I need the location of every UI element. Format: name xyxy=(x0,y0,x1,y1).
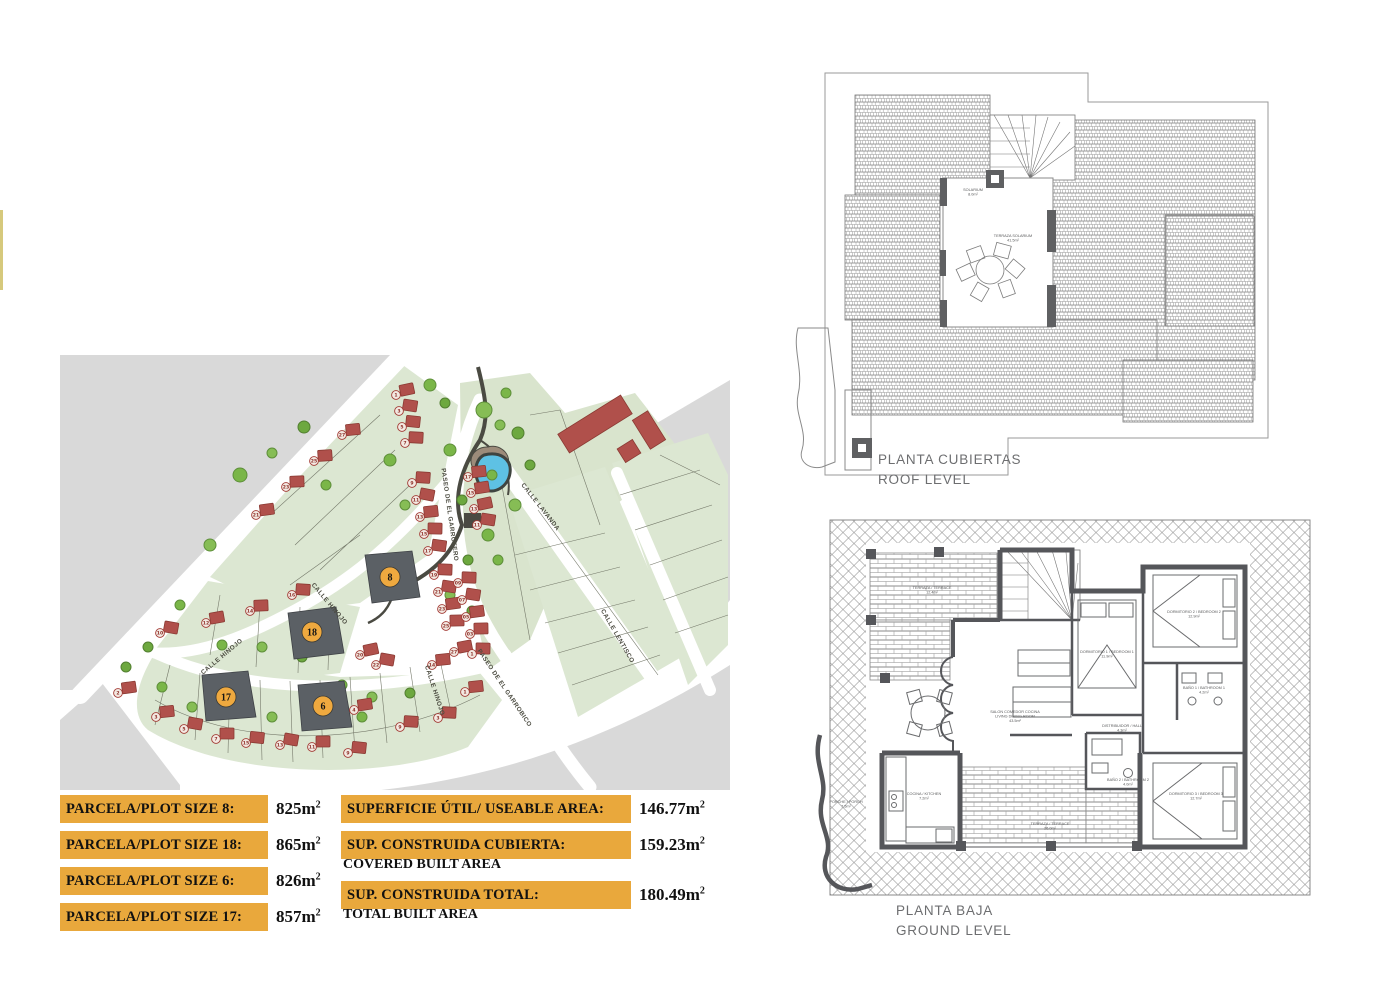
highlight-plot-number: 17 xyxy=(221,693,231,704)
house xyxy=(428,523,442,534)
house-number: 21 xyxy=(253,513,259,519)
house-number: 23 xyxy=(283,485,289,491)
table-row: PARCELA/PLOT SIZE 18: 865m2 xyxy=(60,831,332,859)
house xyxy=(363,643,379,657)
house-number: 1 xyxy=(394,393,397,399)
house xyxy=(296,584,311,596)
house xyxy=(465,588,481,601)
table-row: SUPERFICIE ÚTIL/ USEABLE AREA: 146.77m2 xyxy=(341,795,733,823)
house xyxy=(316,736,330,747)
house xyxy=(404,716,419,728)
house-number: 21 xyxy=(435,590,441,596)
house-number: 27 xyxy=(339,433,345,439)
house-number: 25 xyxy=(443,624,449,630)
house-number: 16 xyxy=(289,593,295,599)
page-edge-strip xyxy=(0,210,3,290)
built-area-table: SUPERFICIE ÚTIL/ USEABLE AREA: 146.77m2 … xyxy=(341,795,733,931)
house xyxy=(462,572,476,583)
plot-size-value: 825m2 xyxy=(276,799,321,819)
area-value: 159.23m2 xyxy=(639,835,705,855)
area-sublabel: COVERED BUILT AREA xyxy=(343,857,733,873)
area-label: SUP. CONSTRUIDA TOTAL: xyxy=(341,881,631,909)
house-number: 13 xyxy=(417,515,423,521)
house xyxy=(416,472,431,484)
ground-caption-es: PLANTA BAJA xyxy=(896,901,1011,921)
house-number: 07 xyxy=(459,598,465,604)
table-row: PARCELA/PLOT SIZE 6: 826m2 xyxy=(60,867,332,895)
ground-plan: TERRAZA / TERRACE12.4m²SALON COMEDOR COC… xyxy=(810,505,1345,940)
house-number: 4 xyxy=(352,708,355,714)
area-value: 180.49m2 xyxy=(639,885,705,905)
area-label: SUP. CONSTRUIDA CUBIERTA: xyxy=(341,831,631,859)
house-number: 1 xyxy=(470,652,473,658)
plot-size-value: 865m2 xyxy=(276,835,321,855)
roof-terrace xyxy=(940,170,1056,327)
house xyxy=(406,415,421,427)
house xyxy=(402,399,418,412)
house xyxy=(423,505,438,517)
house-number: 3 xyxy=(436,716,439,722)
house-number: 17 xyxy=(425,549,431,555)
plot-size-value: 857m2 xyxy=(276,907,321,927)
roof-plan-caption: PLANTA CUBIERTAS ROOF LEVEL xyxy=(878,450,1021,489)
house-number: 15 xyxy=(468,491,474,497)
house-number: 09 xyxy=(455,581,461,587)
house-number: 5 xyxy=(182,727,185,733)
table-row: PARCELA/PLOT SIZE 17: 857m2 xyxy=(60,903,332,931)
plot-size-label: PARCELA/PLOT SIZE 8: xyxy=(60,795,268,823)
area-label: SUPERFICIE ÚTIL/ USEABLE AREA: xyxy=(341,795,631,823)
table-row: PARCELA/PLOT SIZE 8: 825m2 xyxy=(60,795,332,823)
plot-size-label: PARCELA/PLOT SIZE 18: xyxy=(60,831,268,859)
house-number: 2 xyxy=(116,691,119,697)
house xyxy=(250,731,265,743)
house xyxy=(209,611,225,624)
house-number: 14 xyxy=(247,609,253,615)
highlight-plot-number: 18 xyxy=(307,628,317,639)
area-sublabel: TOTAL BUILT AREA xyxy=(343,907,733,923)
house xyxy=(471,465,486,477)
house xyxy=(474,481,490,494)
house-number: 3 xyxy=(397,409,400,415)
area-value: 146.77m2 xyxy=(639,799,705,819)
house-number: 10 xyxy=(157,631,163,637)
house-number: 11 xyxy=(309,745,315,751)
house-number: 12 xyxy=(203,621,209,627)
house xyxy=(379,653,395,666)
house-number: 27 xyxy=(451,650,457,656)
house-number: 11 xyxy=(413,498,419,504)
house xyxy=(159,705,174,717)
house-number: 3 xyxy=(154,715,157,721)
house-number: 23 xyxy=(439,607,445,613)
house-number: 17 xyxy=(465,475,471,481)
house-number: 7 xyxy=(214,737,217,743)
house-number: 1 xyxy=(463,690,466,696)
house-number: 13 xyxy=(277,743,283,749)
roof-plan: SOLARIUM8.0m²TERRAZA SOLARIUM41.5m² xyxy=(790,60,1310,490)
house-number: 15 xyxy=(421,532,427,538)
house xyxy=(474,623,488,634)
roof-caption-en: ROOF LEVEL xyxy=(878,470,1021,490)
house xyxy=(283,733,299,746)
house xyxy=(438,564,452,575)
house-number: 22 xyxy=(373,663,379,669)
ground-plan-caption: PLANTA BAJA GROUND LEVEL xyxy=(896,901,1011,940)
house xyxy=(435,653,450,665)
brochure-page: 1357911131517192123251715131109070503271… xyxy=(0,0,1400,990)
house xyxy=(352,741,367,753)
highlight-plot-number: 6 xyxy=(321,702,326,713)
house-number: 25 xyxy=(311,459,317,465)
house-number: 05 xyxy=(463,615,469,621)
house xyxy=(419,488,435,501)
house xyxy=(254,600,268,611)
house-number: 7 xyxy=(403,441,406,447)
plot-size-value: 826m2 xyxy=(276,871,321,891)
house xyxy=(345,423,360,435)
table-row: SUP. CONSTRUIDA CUBIERTA: 159.23m2 COVER… xyxy=(341,831,733,873)
plot-size-label: PARCELA/PLOT SIZE 17: xyxy=(60,903,268,931)
plot-size-table: PARCELA/PLOT SIZE 8: 825m2 PARCELA/PLOT … xyxy=(60,795,332,939)
house-number: 03 xyxy=(467,632,473,638)
house-number: 13 xyxy=(471,507,477,513)
house xyxy=(468,680,483,692)
house xyxy=(480,513,496,526)
site-plan-map: 1357911131517192123251715131109070503271… xyxy=(60,355,730,790)
house-number: 5 xyxy=(400,425,403,431)
house-number: 9 xyxy=(346,751,349,757)
house-number: 11 xyxy=(474,523,480,529)
ground-caption-en: GROUND LEVEL xyxy=(896,921,1011,941)
house xyxy=(477,497,493,511)
house xyxy=(431,539,446,552)
house xyxy=(318,450,333,462)
house xyxy=(259,503,274,516)
house-number: 9 xyxy=(410,481,413,487)
house xyxy=(469,605,484,618)
house xyxy=(187,717,203,730)
house xyxy=(220,728,234,739)
house-number: 19 xyxy=(431,573,437,579)
house xyxy=(357,698,373,711)
house-number: 15 xyxy=(243,741,249,747)
house xyxy=(399,383,415,397)
house-number: 9 xyxy=(398,725,401,731)
house xyxy=(121,681,136,694)
house xyxy=(409,432,424,444)
roof-caption-es: PLANTA CUBIERTAS xyxy=(878,450,1021,470)
table-row: SUP. CONSTRUIDA TOTAL: 180.49m2 TOTAL BU… xyxy=(341,881,733,923)
house xyxy=(290,476,304,487)
house xyxy=(163,621,179,634)
plot-size-label: PARCELA/PLOT SIZE 6: xyxy=(60,867,268,895)
highlight-plot-number: 8 xyxy=(388,573,393,584)
stairs xyxy=(1000,550,1080,620)
house-number: 20 xyxy=(357,653,363,659)
